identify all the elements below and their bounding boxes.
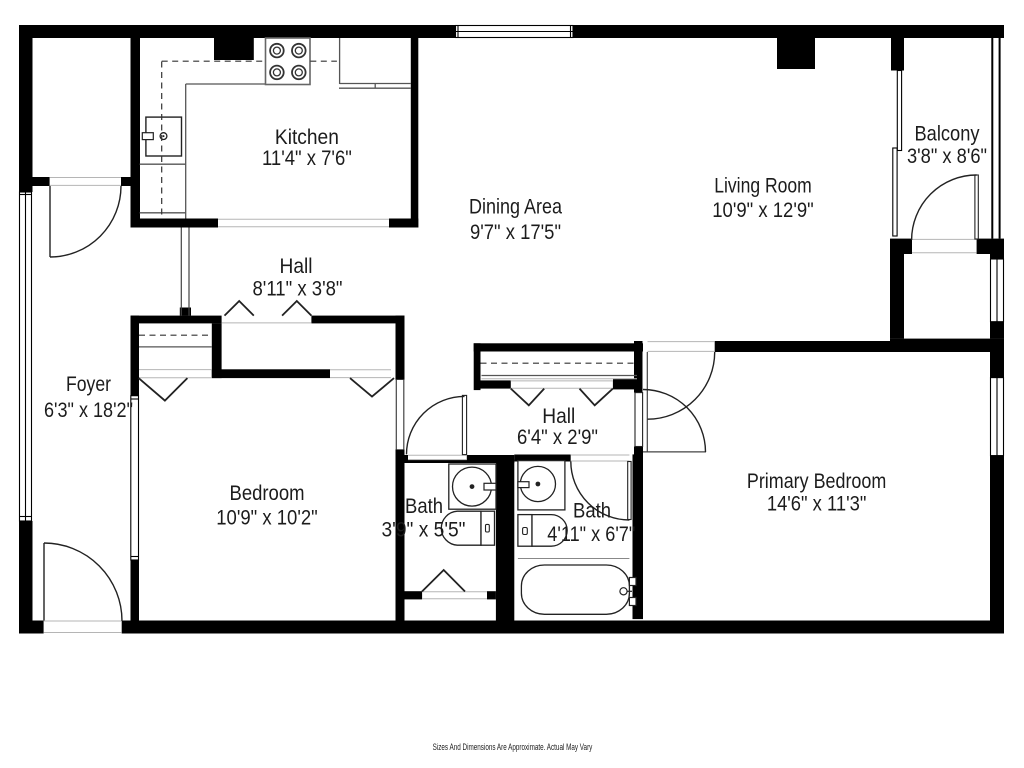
svg-text:Bedroom: Bedroom	[230, 482, 305, 505]
svg-text:10'9" x 10'2": 10'9" x 10'2"	[216, 507, 318, 530]
svg-text:10'9" x 12'9": 10'9" x 12'9"	[712, 199, 814, 222]
svg-text:Balcony: Balcony	[915, 122, 981, 145]
svg-text:Foyer: Foyer	[66, 373, 111, 396]
svg-text:Primary Bedroom: Primary Bedroom	[747, 470, 886, 493]
svg-text:8'11" x 3'8": 8'11" x 3'8"	[253, 277, 343, 300]
svg-text:Living Room: Living Room	[714, 175, 812, 198]
svg-text:11'4" x 7'6": 11'4" x 7'6"	[262, 147, 352, 170]
svg-text:6'4" x 2'9": 6'4" x 2'9"	[517, 426, 598, 449]
svg-text:4'11" x 6'7": 4'11" x 6'7"	[547, 523, 635, 546]
svg-text:Bath: Bath	[573, 500, 611, 523]
svg-text:Kitchen: Kitchen	[275, 126, 339, 149]
svg-text:6'3" x 18'2": 6'3" x 18'2"	[44, 399, 133, 422]
svg-text:Bath: Bath	[405, 495, 443, 518]
svg-text:Dining Area: Dining Area	[469, 195, 562, 218]
svg-text:3'9" x 5'5": 3'9" x 5'5"	[382, 519, 466, 542]
svg-text:Sizes And Dimensions Are Appro: Sizes And Dimensions Are Approximate. Ac…	[433, 742, 593, 752]
svg-text:9'7" x 17'5": 9'7" x 17'5"	[470, 221, 561, 244]
svg-text:Hall: Hall	[542, 405, 575, 428]
svg-text:3'8" x 8'6": 3'8" x 8'6"	[907, 145, 987, 168]
svg-text:14'6" x 11'3": 14'6" x 11'3"	[767, 492, 867, 515]
svg-text:Hall: Hall	[280, 255, 313, 278]
